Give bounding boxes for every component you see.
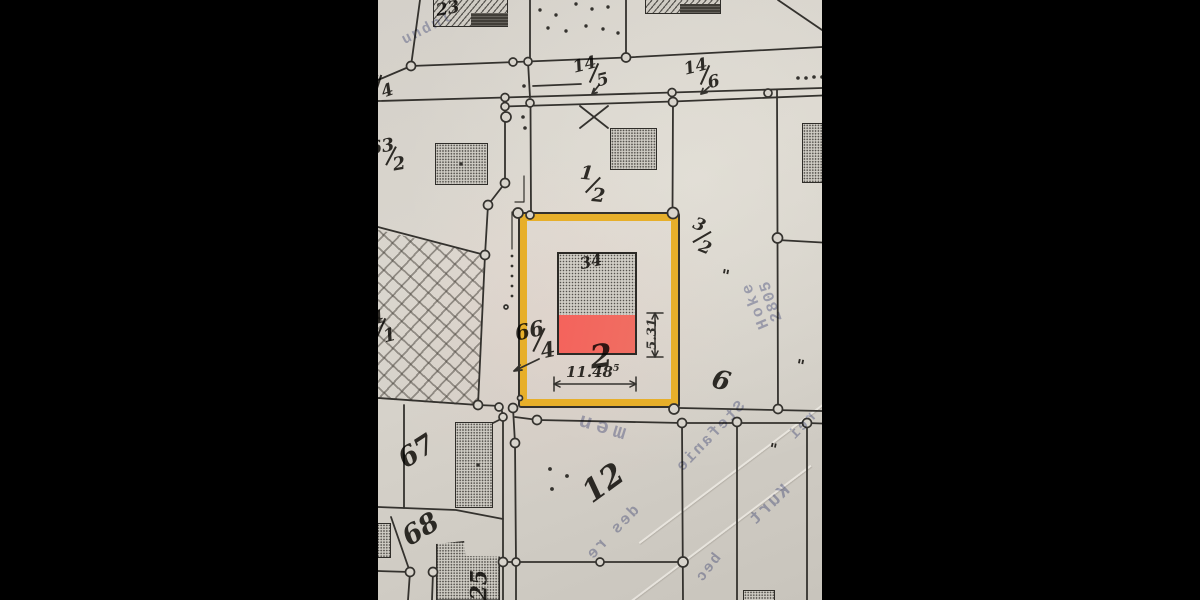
screenshot-stage: 23 67 68 12 2 6 34 25 144 145 146 632 12… [0,0,1200,600]
x-mark [580,106,608,128]
building-label-25: 25 [468,570,490,600]
orchard-dots [459,2,822,491]
cadastral-map-photo: 23 67 68 12 2 6 34 25 144 145 146 632 12… [378,0,822,600]
black-bar-right [822,0,1200,600]
bold-dash [533,84,581,86]
black-bar-left [0,0,378,600]
building-label-34: 34 [579,252,604,272]
parcel-label-1-2: 12 [584,165,601,203]
measurement-width: 11.485 [566,364,619,380]
measurement-height: 5.31 [630,312,674,356]
